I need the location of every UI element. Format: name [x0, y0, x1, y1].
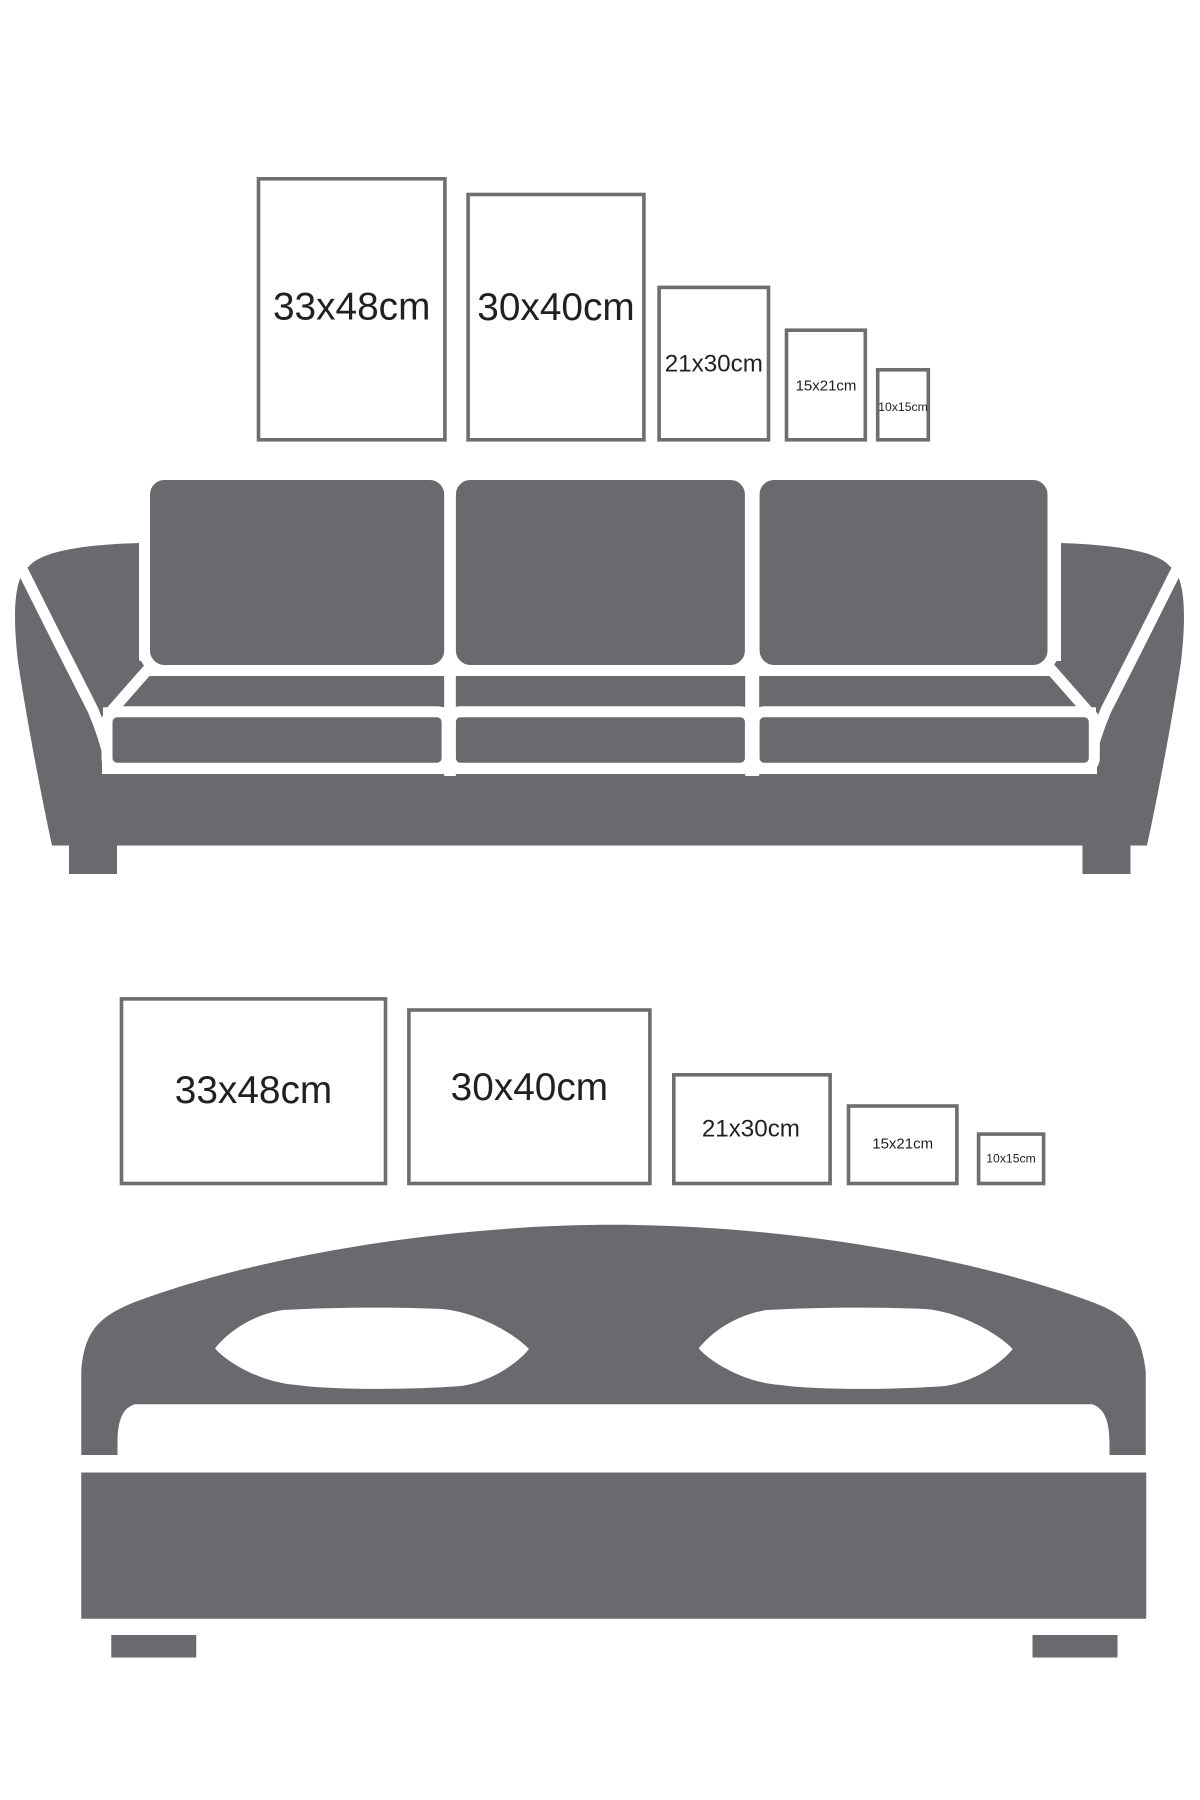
svg-text:30x40cm: 30x40cm [477, 286, 634, 329]
svg-text:30x40cm: 30x40cm [451, 1066, 608, 1109]
svg-text:15x21cm: 15x21cm [796, 377, 857, 394]
svg-text:10x15cm: 10x15cm [986, 1152, 1035, 1166]
svg-text:21x30cm: 21x30cm [665, 351, 763, 378]
svg-text:21x30cm: 21x30cm [702, 1115, 800, 1142]
svg-text:15x21cm: 15x21cm [872, 1136, 933, 1153]
svg-text:33x48cm: 33x48cm [273, 286, 430, 329]
svg-text:33x48cm: 33x48cm [175, 1069, 332, 1112]
svg-text:10x15cm: 10x15cm [878, 400, 927, 414]
